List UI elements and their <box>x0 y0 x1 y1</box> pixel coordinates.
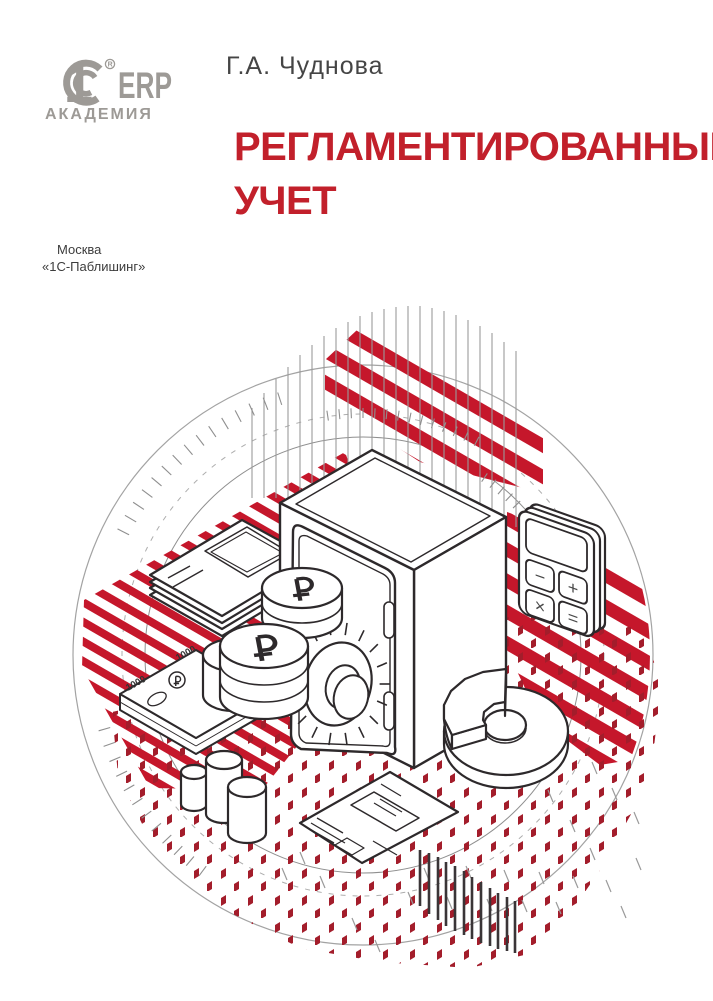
registered-mark-icon: R <box>105 59 114 68</box>
logo-erp-label: ERP <box>118 65 172 106</box>
book-title-line2: УЧЕТ <box>234 174 713 228</box>
publisher-name: «1С-Паблишинг» <box>42 258 145 275</box>
publisher-block: Москва «1С-Паблишинг» <box>42 241 145 275</box>
author-name: Г.А. Чуднова <box>226 52 384 81</box>
brand-logo: 1 R ERP АКАДЕМИЯ <box>40 56 210 128</box>
logo-academy-label: АКАДЕМИЯ <box>45 106 153 123</box>
minus-key-icon: − <box>535 564 546 588</box>
multiply-key-icon: × <box>535 594 546 618</box>
door-bolt <box>384 692 394 730</box>
book-title-line1: РЕГЛАМЕНТИРОВАННЫЙ <box>234 120 713 174</box>
book-cover: 1 R ERP АКАДЕМИЯ Г.А. Чуднова РЕГЛАМЕНТИ… <box>0 0 713 1001</box>
svg-text:R: R <box>108 62 113 69</box>
book-title: РЕГЛАМЕНТИРОВАННЫЙ УЧЕТ <box>234 120 713 228</box>
cover-illustration: 1000 1000 <box>40 292 680 972</box>
door-bolt <box>384 602 394 638</box>
equals-key-icon: = <box>568 606 579 630</box>
publisher-city: Москва <box>42 241 145 258</box>
plus-key-icon: + <box>568 576 579 600</box>
